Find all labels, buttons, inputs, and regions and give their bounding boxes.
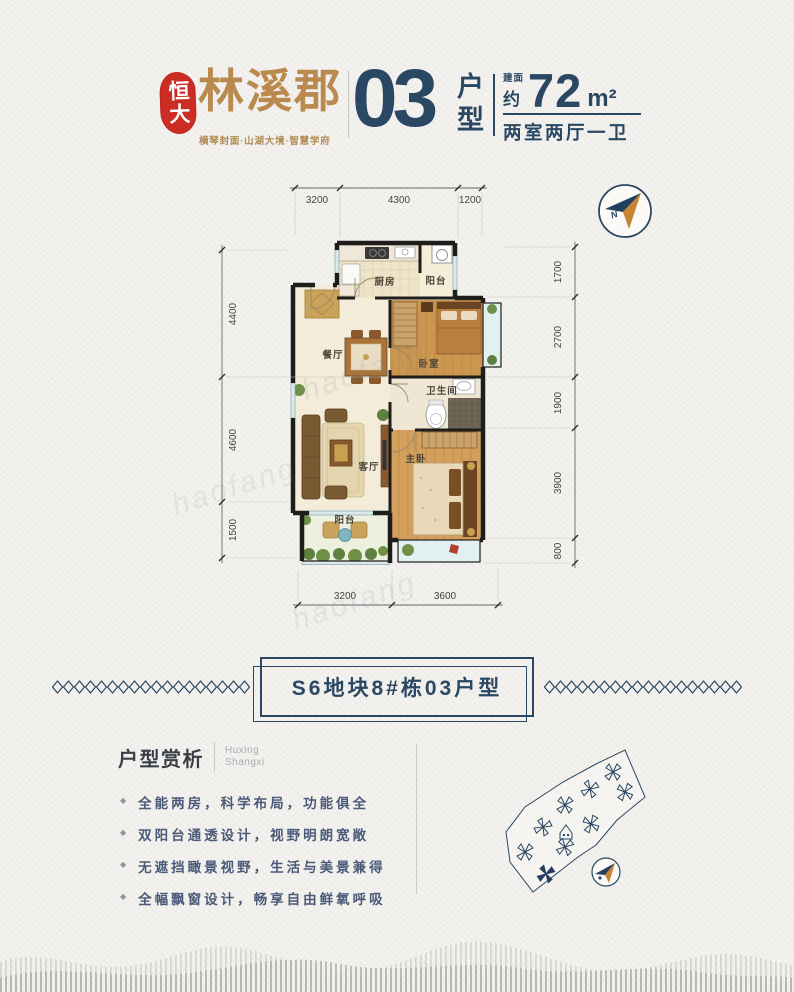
list-item: ◆ 双阳台通透设计，视野明朗宽敞 bbox=[118, 824, 408, 844]
dim-bottom-2: 3600 bbox=[434, 591, 457, 602]
compass-icon: N bbox=[596, 182, 654, 240]
diamond-bullet-icon: ◆ bbox=[120, 828, 126, 837]
dim-bottom-1: 3200 bbox=[334, 591, 357, 602]
room-label-dining: 餐厅 bbox=[321, 349, 343, 361]
banner-box: S6地块8#栋03户型 bbox=[260, 657, 534, 717]
project-tagline: 横琴封面·山湖大境·智慧学府 bbox=[199, 133, 331, 147]
nightstand-icon bbox=[421, 302, 433, 312]
bed-icon bbox=[437, 302, 481, 354]
area-value: 72 bbox=[528, 72, 582, 110]
master-bed-icon bbox=[413, 461, 477, 537]
room-label-bedroom: 卧室 bbox=[418, 358, 439, 370]
unit-number: 03 bbox=[352, 66, 433, 132]
wardrobe-icon bbox=[393, 302, 417, 346]
washer-icon bbox=[432, 245, 452, 263]
unit-type-label: 户型 bbox=[454, 72, 481, 138]
bullet-text: 无遮挡瞰景视野，生活与美景兼得 bbox=[138, 856, 386, 876]
floor-plan: 厨房 阳台 卧室 餐厅 卫生间 客厅 主卧 阳台 3200 4 bbox=[205, 178, 605, 618]
analysis-subtitle-en: Huxing Shangxi bbox=[225, 745, 265, 770]
area-approx: 约 bbox=[503, 85, 520, 110]
bullet-text: 全能两房，科学布局，功能俱全 bbox=[138, 792, 369, 812]
area-row: 建面 约 72 m² bbox=[503, 70, 641, 115]
room-label-master: 主卧 bbox=[405, 453, 426, 465]
project-brand-name: 林溪郡 bbox=[198, 64, 342, 119]
room-label-balcony-bottom: 阳台 bbox=[334, 514, 355, 526]
lamp-icon bbox=[467, 462, 475, 470]
header-divider bbox=[348, 70, 349, 138]
diamond-bullet-icon: ◆ bbox=[120, 892, 126, 901]
bullet-text: 双阳台通透设计，视野明朗宽敞 bbox=[138, 824, 369, 844]
layout-description: 两室两厅一卫 bbox=[503, 119, 653, 145]
bullet-text: 全幅飘窗设计，畅享自由鲜氧呼吸 bbox=[138, 888, 386, 908]
header-divider-navy bbox=[493, 74, 495, 136]
diamond-chain-left bbox=[52, 679, 250, 695]
dim-top-2: 4300 bbox=[388, 195, 411, 206]
analysis-section: 户型赏析 Huxing Shangxi ◆ 全能两房，科学布局，功能俱全 ◆ 双… bbox=[118, 742, 408, 920]
dining-set-icon bbox=[345, 330, 387, 384]
dim-left-2: 4600 bbox=[228, 428, 239, 451]
toilet-icon bbox=[426, 400, 446, 429]
section-banner: S6地块8#栋03户型 bbox=[0, 654, 794, 720]
coffee-table-icon bbox=[330, 440, 352, 466]
mountain-footer-decoration bbox=[0, 928, 794, 992]
dim-right-3: 1900 bbox=[553, 391, 564, 414]
area-label-col: 建面 约 bbox=[503, 70, 524, 110]
list-item: ◆ 无遮挡瞰景视野，生活与美景兼得 bbox=[118, 856, 408, 876]
banner-title: S6地块8#栋03户型 bbox=[292, 672, 502, 702]
analysis-title: 户型赏析 bbox=[118, 743, 204, 772]
subtitle-line-2: Shangxi bbox=[225, 757, 265, 770]
room-label-balcony-top: 阳台 bbox=[425, 275, 446, 287]
plant-icon bbox=[487, 355, 497, 365]
dim-right-5: 800 bbox=[553, 542, 564, 559]
plant-icon bbox=[377, 409, 389, 421]
site-compass-icon bbox=[592, 858, 620, 886]
developer-seal-logo: 恒大 bbox=[159, 71, 197, 134]
entry-rug-icon bbox=[305, 290, 339, 318]
diamond-bullet-icon: ◆ bbox=[120, 796, 126, 805]
dim-top-1: 3200 bbox=[306, 195, 329, 206]
title-divider bbox=[214, 742, 215, 772]
diamond-chain-right bbox=[544, 679, 742, 695]
area-unit: m² bbox=[587, 88, 616, 110]
plant-icon bbox=[487, 304, 497, 314]
dim-top-3: 1200 bbox=[459, 195, 482, 206]
analysis-bullet-list: ◆ 全能两房，科学布局，功能俱全 ◆ 双阳台通透设计，视野明朗宽敞 ◆ 无遮挡瞰… bbox=[118, 792, 408, 908]
room-label-living: 客厅 bbox=[357, 461, 379, 473]
room-label-kitchen: 厨房 bbox=[374, 276, 395, 288]
dim-right-2: 2700 bbox=[553, 325, 564, 348]
list-item: ◆ 全幅飘窗设计，畅享自由鲜氧呼吸 bbox=[118, 888, 408, 908]
lamp-icon bbox=[467, 528, 475, 536]
diamond-bullet-icon: ◆ bbox=[120, 860, 126, 869]
area-label: 建面 bbox=[503, 70, 524, 84]
developer-seal-text: 恒大 bbox=[167, 80, 190, 127]
site-plan-sketch bbox=[478, 732, 743, 937]
subtitle-line-1: Huxing bbox=[225, 745, 265, 758]
site-boundary bbox=[506, 750, 645, 892]
section-divider bbox=[416, 744, 417, 894]
area-block: 建面 约 72 m² 两室两厅一卫 bbox=[503, 70, 653, 145]
dim-left-1: 4400 bbox=[228, 302, 239, 325]
table-icon bbox=[339, 529, 352, 542]
analysis-title-row: 户型赏析 Huxing Shangxi bbox=[118, 742, 408, 772]
list-item: ◆ 全能两房，科学布局，功能俱全 bbox=[118, 792, 408, 812]
dim-right-4: 3900 bbox=[553, 471, 564, 494]
dim-right-1: 1700 bbox=[553, 260, 564, 283]
room-label-bath: 卫生间 bbox=[426, 385, 458, 397]
plant-icon bbox=[402, 544, 414, 556]
master-wardrobe-icon bbox=[422, 432, 477, 448]
dim-left-3: 1500 bbox=[228, 518, 239, 541]
fridge-icon bbox=[342, 264, 360, 284]
